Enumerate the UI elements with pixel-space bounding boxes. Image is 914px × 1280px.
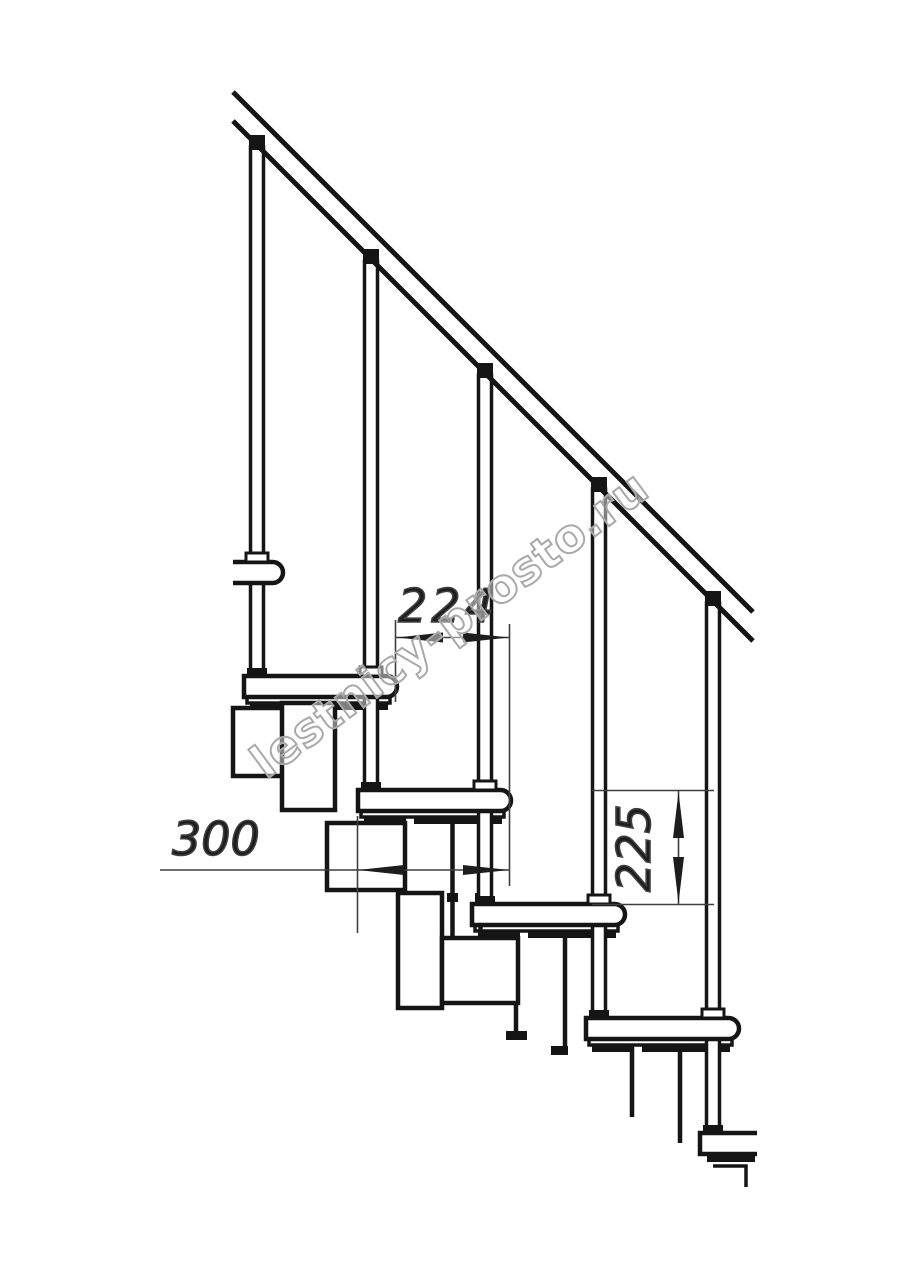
- baluster-5-collar: [702, 1009, 724, 1018]
- baluster-3-cap: [477, 363, 493, 378]
- module-vbox-step3: [398, 893, 442, 1008]
- baluster-5-cap: [705, 591, 721, 606]
- pipe3-flange-left: [447, 893, 458, 902]
- dimension-label-300: 300: [172, 812, 260, 866]
- tread-1: [233, 562, 283, 583]
- baluster-1-cap: [249, 135, 265, 150]
- staircase-side-elevation: 224 300 225 lestnicy-prosto.ru: [0, 0, 914, 1280]
- tread-4: [472, 904, 625, 925]
- baluster-1-foot: [247, 668, 267, 676]
- baluster-4-foot: [589, 1010, 609, 1018]
- baluster-1-collar: [246, 553, 268, 562]
- pipe4-foot: [551, 1046, 568, 1055]
- baluster-3-foot: [475, 896, 495, 904]
- module-hook-bottom: [713, 1166, 746, 1187]
- dimension-225: 225: [592, 791, 714, 905]
- tread-3: [358, 790, 511, 811]
- tread-5: [586, 1018, 739, 1039]
- baluster-5-foot: [703, 1125, 723, 1133]
- baluster-5-shaft: [707, 603, 720, 1133]
- baluster-4-shaft: [593, 489, 606, 1018]
- baluster-1-shaft: [251, 147, 264, 676]
- baluster-2-cap: [363, 249, 379, 264]
- module-sbox-step2: [327, 823, 405, 890]
- tread-6: [700, 1133, 757, 1154]
- dimension-label-225: 225: [607, 804, 661, 892]
- arrowhead-up: [673, 792, 684, 838]
- module-sbox-step3: [442, 938, 518, 1003]
- staircase-drawing-page: 224 300 225 lestnicy-prosto.ru: [0, 0, 914, 1280]
- baluster-2-foot: [361, 782, 381, 790]
- arrowhead-down: [673, 857, 684, 903]
- stub-foot-step3: [506, 1031, 527, 1040]
- baluster-3-collar: [474, 781, 496, 790]
- baluster-4-collar: [588, 895, 610, 904]
